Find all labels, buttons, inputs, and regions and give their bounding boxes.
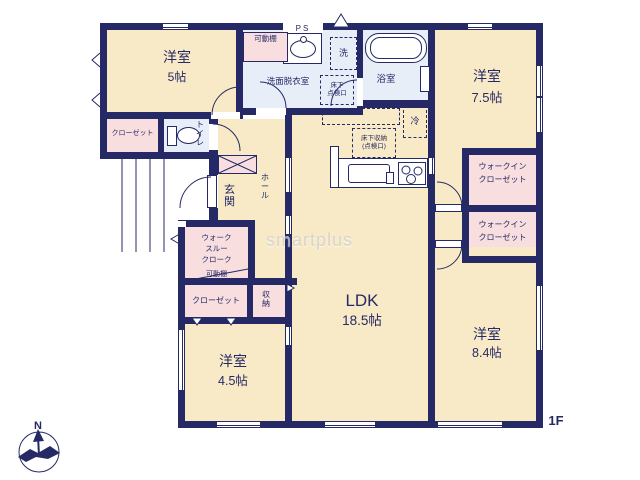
wall-segment	[100, 23, 107, 159]
closet-upper-label: クローゼット	[107, 130, 158, 138]
storage-label: 収納	[262, 291, 270, 309]
wic-lower-label: ウォークインクローゼット	[469, 219, 536, 245]
room45-label: 洋室	[183, 353, 283, 370]
genkan-label: 玄関	[224, 184, 235, 208]
room45-sliding-door	[285, 327, 292, 345]
underfloor-storage-label-2: (点検口)	[362, 143, 386, 151]
kitchen-faucet-icon	[386, 172, 394, 184]
cloak-opening	[178, 221, 186, 227]
compass-north-label: N	[26, 420, 50, 433]
refrigerator-label: 冷	[410, 116, 419, 127]
room5-size: 5帖	[127, 70, 227, 84]
washer-label: 洗	[339, 48, 348, 59]
wall-segment	[248, 220, 255, 285]
toilet-tank-icon	[167, 126, 177, 146]
wall-segment	[236, 23, 243, 112]
underfloor-hatch-label-2: 点検口	[327, 90, 347, 98]
room5-label: 洋室	[127, 49, 227, 66]
counter-dashed-outline	[322, 108, 400, 125]
underfloor-storage-box: 床下収納 (点検口)	[352, 128, 396, 158]
kitchen-sink-icon	[348, 164, 390, 183]
room-4-5jo-floor	[185, 324, 285, 421]
movable-shelf-lower-label: 可動棚	[185, 271, 248, 279]
wall-segment	[100, 152, 218, 159]
wall-segment	[462, 256, 536, 263]
wic-lower-door-leaf	[435, 240, 462, 248]
wall-segment	[158, 119, 164, 152]
watermark: smartplus	[266, 230, 353, 251]
wall-segment	[462, 148, 536, 155]
shoe-cabinet-box	[218, 155, 257, 174]
wall-segment	[285, 108, 292, 321]
room84-label: 洋室	[437, 326, 537, 343]
window	[536, 286, 543, 350]
refrigerator-space: 冷	[403, 105, 427, 138]
walk-through-cloak-label: ウォーク スルー クローク	[185, 233, 248, 266]
bathtub-inner	[370, 37, 422, 59]
window	[536, 66, 543, 96]
room45-size: 4.5帖	[183, 374, 283, 389]
window	[428, 158, 435, 174]
wic-upper-door-leaf	[435, 204, 462, 212]
washer-space: 洗	[330, 37, 357, 70]
wall-segment	[178, 220, 255, 227]
room75-size: 7.5帖	[437, 90, 537, 106]
porch-steps	[122, 159, 164, 252]
kitchen-counter-end	[330, 146, 339, 188]
stove-icon	[398, 162, 426, 185]
bath-counter	[420, 66, 430, 92]
entrance-door-leaf	[207, 175, 217, 208]
ldk-hall-sliding-door	[285, 158, 292, 192]
washbasin-tap-icon	[300, 36, 307, 43]
underfloor-storage-label-1: 床下収納	[361, 135, 387, 143]
floor-plan: 冷 床下収納 (点検口) 床下 点検口 洗	[0, 0, 640, 480]
washroom-door-opening	[256, 108, 286, 115]
window	[325, 421, 375, 428]
wall-segment	[178, 317, 292, 324]
wall-segment	[247, 285, 253, 317]
toilet-label: トイレ	[196, 121, 204, 147]
closet-lower-label: クローゼット	[185, 296, 247, 306]
toilet-door-opening	[209, 124, 218, 150]
ldk-size: 18.5帖	[312, 313, 412, 329]
floor-label: 1F	[544, 413, 568, 429]
room5-door-opening	[211, 112, 240, 119]
wic-upper-label: ウォークインクローゼット	[469, 161, 536, 187]
room84-size: 8.4帖	[437, 346, 537, 361]
room75-label: 洋室	[437, 68, 537, 85]
hall-label: ホール	[261, 174, 269, 200]
window	[536, 98, 543, 132]
compass-icon	[18, 429, 60, 472]
window	[468, 23, 492, 30]
window	[438, 421, 502, 428]
ldk-label: LDK	[312, 291, 412, 311]
washroom-label: 洗面脱衣室	[234, 76, 342, 86]
ps-label: PS	[283, 24, 323, 34]
room-7-5jo-floor	[435, 30, 536, 148]
movable-shelf-top-label: 可動棚	[243, 34, 288, 43]
wall-segment	[178, 220, 185, 428]
bath-label: 浴室	[353, 74, 419, 85]
wall-segment	[462, 205, 536, 212]
window	[217, 421, 260, 428]
window	[163, 23, 188, 30]
